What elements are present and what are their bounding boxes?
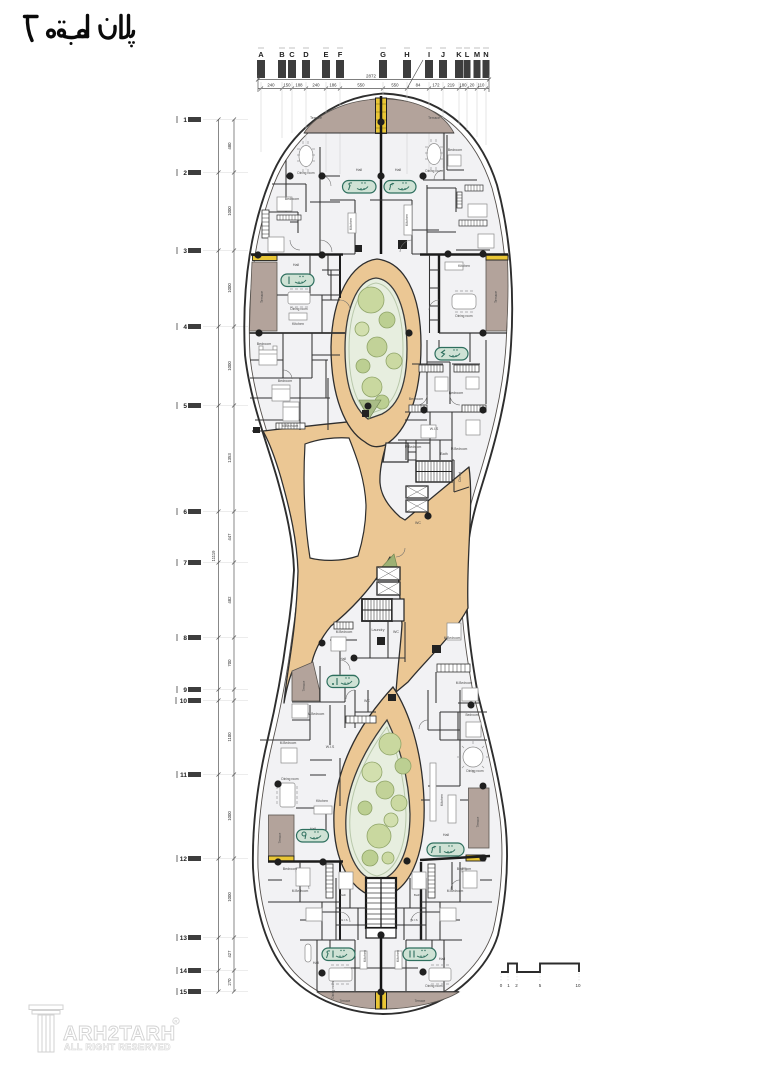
svg-text:3: 3 [183,248,187,255]
svg-text:1000: 1000 [227,206,232,216]
svg-text:E: E [323,50,328,59]
svg-text:ALL RIGHT RESERVED: ALL RIGHT RESERVED [64,1042,171,1052]
svg-text:A: A [258,50,264,59]
svg-text:Terrace: Terrace [494,291,498,303]
svg-text:B: B [279,50,285,59]
svg-text:Hall: Hall [340,657,346,661]
svg-text:Dining room: Dining room [281,777,299,781]
svg-text:5: 5 [183,403,187,410]
svg-text:Closet: Closet [458,472,462,482]
svg-text:2: 2 [183,170,187,177]
svg-text:Hall: Hall [293,263,299,267]
svg-text:I: I [428,50,430,59]
svg-text:9: 9 [183,687,187,694]
svg-text:427: 427 [227,950,232,958]
svg-text:Bedroom: Bedroom [457,867,472,871]
svg-text:180: 180 [459,83,467,88]
svg-text:Terrace: Terrace [310,116,322,120]
svg-text:Bath: Bath [440,452,447,456]
svg-text:7: 7 [183,560,187,567]
svg-text:11119: 11119 [211,550,216,562]
svg-text:Hall: Hall [356,168,362,172]
svg-text:110: 110 [478,83,485,88]
svg-text:Terrace: Terrace [476,816,480,827]
svg-text:Laundry: Laundry [372,628,385,632]
svg-text:F: F [338,50,343,59]
svg-text:H: H [404,50,409,59]
svg-text:172: 172 [432,83,440,88]
svg-text:240: 240 [267,83,275,88]
svg-text:M.Bedroom: M.Bedroom [444,636,461,640]
svg-text:Kitchen: Kitchen [440,794,444,806]
svg-text:1000: 1000 [227,892,232,902]
svg-text:Dining room: Dining room [466,769,484,773]
svg-text:M.Bedroom: M.Bedroom [336,630,353,634]
svg-text:Terrace: Terrace [340,999,351,1003]
svg-text:M.Bedroom: M.Bedroom [282,424,299,428]
svg-text:15: 15 [180,989,188,996]
svg-text:W.I.S: W.I.S [430,427,439,431]
svg-text:W.I.S: W.I.S [340,918,347,922]
svg-text:D: D [303,50,309,59]
svg-text:Dining room: Dining room [297,171,315,175]
svg-text:Kitchen: Kitchen [458,264,470,268]
svg-text:Kitchen: Kitchen [405,214,409,226]
svg-text:Bath: Bath [340,893,347,897]
svg-text:K: K [456,50,462,59]
svg-text:WC: WC [393,630,399,634]
svg-text:Dining room: Dining room [425,984,443,988]
svg-text:Bedroom: Bedroom [257,342,272,346]
svg-text:Dining room: Dining room [425,169,443,173]
svg-text:13: 13 [180,935,188,942]
svg-text:Kitchen: Kitchen [349,218,353,230]
svg-text:20: 20 [470,83,475,88]
svg-text:Bedroom: Bedroom [278,379,293,383]
svg-text:Terrace: Terrace [260,291,264,303]
svg-text:11: 11 [180,772,187,779]
svg-text:1000: 1000 [227,361,232,371]
svg-text:Kitchen: Kitchen [316,799,328,803]
svg-text:12: 12 [180,856,188,863]
svg-text:Kitchen: Kitchen [292,322,304,326]
svg-text:N: N [483,50,488,59]
svg-text:Hall: Hall [443,833,449,837]
svg-text:Hall: Hall [313,961,319,965]
svg-text:W.I.S: W.I.S [326,745,335,749]
svg-text:1: 1 [183,117,187,124]
svg-text:G: G [380,50,386,59]
svg-text:Dining room: Dining room [290,307,308,311]
svg-text:Hall: Hall [439,957,445,961]
svg-text:10: 10 [180,698,188,705]
svg-text:Terrace: Terrace [302,680,306,691]
svg-text:14: 14 [180,968,188,975]
svg-text:W.I.S: W.I.S [410,918,417,922]
svg-text:M.Bedroom: M.Bedroom [447,889,464,893]
svg-text:10: 10 [575,983,581,988]
svg-text:550: 550 [391,83,399,88]
svg-text:6: 6 [183,509,187,516]
svg-text:150: 150 [283,83,291,88]
svg-text:2872: 2872 [366,74,377,79]
svg-text:482: 482 [227,596,232,604]
svg-text:270: 270 [227,978,232,986]
svg-text:186: 186 [329,83,337,88]
svg-text:Dining room: Dining room [455,314,473,318]
svg-text:188: 188 [295,83,303,88]
svg-text:M.Bedroom: M.Bedroom [280,741,297,745]
svg-text:Terrace: Terrace [415,999,426,1003]
svg-text:Bedroom: Bedroom [449,391,464,395]
svg-text:700: 700 [227,659,232,667]
svg-text:8: 8 [183,635,187,642]
svg-text:Kitchen: Kitchen [396,950,400,962]
svg-text:Dining room: Dining room [331,981,335,999]
svg-text:Hall: Hall [395,168,401,172]
svg-text:Terrace: Terrace [278,832,282,843]
svg-text:4: 4 [183,324,187,331]
svg-text:WC: WC [415,521,421,525]
svg-text:Kitchen: Kitchen [363,950,367,962]
svg-text:480: 480 [227,142,232,150]
svg-text:M.Bedroom: M.Bedroom [405,445,422,449]
svg-text:M.Bedroom: M.Bedroom [451,447,468,451]
svg-text:1100: 1100 [227,732,232,742]
svg-text:Bedroom: Bedroom [409,397,424,401]
svg-text:C: C [289,50,295,59]
svg-text:M.Bedroom: M.Bedroom [308,712,325,716]
svg-text:1000: 1000 [227,811,232,821]
svg-text:550: 550 [357,83,365,88]
svg-text:WC: WC [364,699,370,703]
svg-text:M.Bedroom: M.Bedroom [292,889,309,893]
svg-text:1000: 1000 [227,283,232,293]
svg-text:84: 84 [416,83,421,88]
svg-text:1353: 1353 [227,453,232,463]
svg-text:Bedroom: Bedroom [283,867,298,871]
svg-text:Bedroom: Bedroom [285,197,300,201]
svg-text:M: M [474,50,480,59]
svg-text:M.Bedroom: M.Bedroom [456,681,473,685]
svg-text:L: L [465,50,470,59]
svg-text:Terrace: Terrace [428,116,440,120]
svg-text:Bedroom: Bedroom [466,713,479,717]
svg-text:Bedroom: Bedroom [448,148,463,152]
svg-text:219: 219 [447,83,455,88]
svg-text:Bath: Bath [414,893,421,897]
svg-text:447: 447 [227,533,232,541]
svg-text:240: 240 [312,83,320,88]
svg-text:J: J [441,50,445,59]
